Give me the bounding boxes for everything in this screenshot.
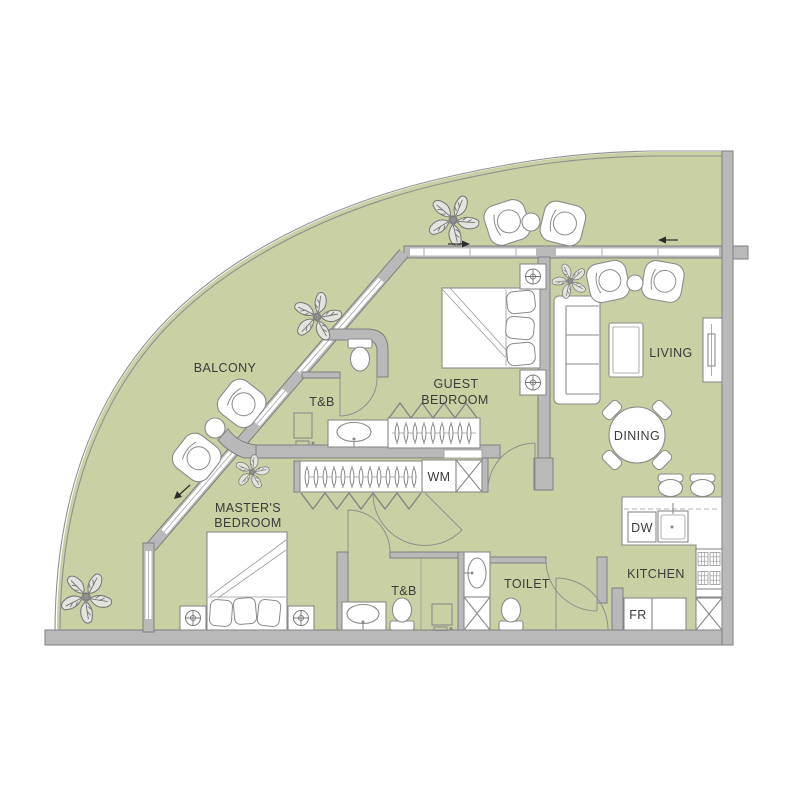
balcony-table	[205, 418, 225, 438]
kitchen-stub-wall	[612, 588, 623, 630]
pillow	[257, 599, 282, 627]
armchair	[640, 259, 686, 304]
kitchen-cabinet	[652, 598, 686, 630]
lamp-icon	[526, 375, 541, 390]
master-bedroom-label-1: MASTER'S	[215, 501, 281, 515]
master-bath-sink-counter	[342, 602, 386, 630]
guest-bath-partition	[302, 372, 340, 378]
kitchen-label: KITCHEN	[627, 567, 685, 581]
pillow	[209, 599, 233, 626]
master-bedroom-label-2: BEDROOM	[214, 516, 281, 530]
shaft-east-wall	[482, 458, 488, 492]
dishwasher-label: DW	[631, 521, 653, 535]
master-bath-north-wall	[390, 552, 462, 558]
balcony-table	[522, 213, 540, 231]
living-window	[556, 249, 719, 256]
bar-stool	[658, 474, 683, 497]
toilet-east-wall	[597, 557, 607, 603]
toilet-label: TOILET	[504, 577, 550, 591]
pillow	[506, 290, 536, 315]
guest-bedroom-label-1: GUEST	[433, 377, 478, 391]
lamp-icon	[526, 269, 541, 284]
balcony-label: BALCONY	[194, 361, 257, 375]
lamp-icon	[294, 611, 309, 626]
sofa	[554, 296, 600, 404]
toilet-north-wall	[490, 557, 546, 563]
side-table	[627, 275, 643, 291]
master-bath-label: T&B	[391, 584, 417, 598]
guest-bath-label: T&B	[309, 395, 335, 409]
guest-window	[410, 249, 536, 256]
pillow	[506, 342, 536, 366]
shelf	[444, 450, 482, 458]
pillow	[233, 597, 257, 625]
dining-label: DINING	[614, 429, 660, 443]
pillow	[505, 316, 535, 340]
right-wall-stub	[733, 246, 748, 259]
guest-bedroom-label-2: BEDROOM	[421, 393, 488, 407]
refrigerator-label: FR	[629, 608, 646, 622]
washing-machine-label: WM	[427, 470, 450, 484]
coffee-table	[609, 323, 643, 377]
tv-console	[703, 318, 722, 382]
floor-plan: BALCONY MASTER'S BEDROOM GUEST BEDROOM T…	[0, 0, 800, 800]
bar-stool	[690, 474, 715, 497]
shaft-column-wall	[458, 552, 464, 630]
living-label: LIVING	[649, 346, 692, 360]
right-wall	[722, 151, 733, 645]
divider-wall-end	[534, 458, 553, 490]
lamp-icon	[186, 611, 201, 626]
